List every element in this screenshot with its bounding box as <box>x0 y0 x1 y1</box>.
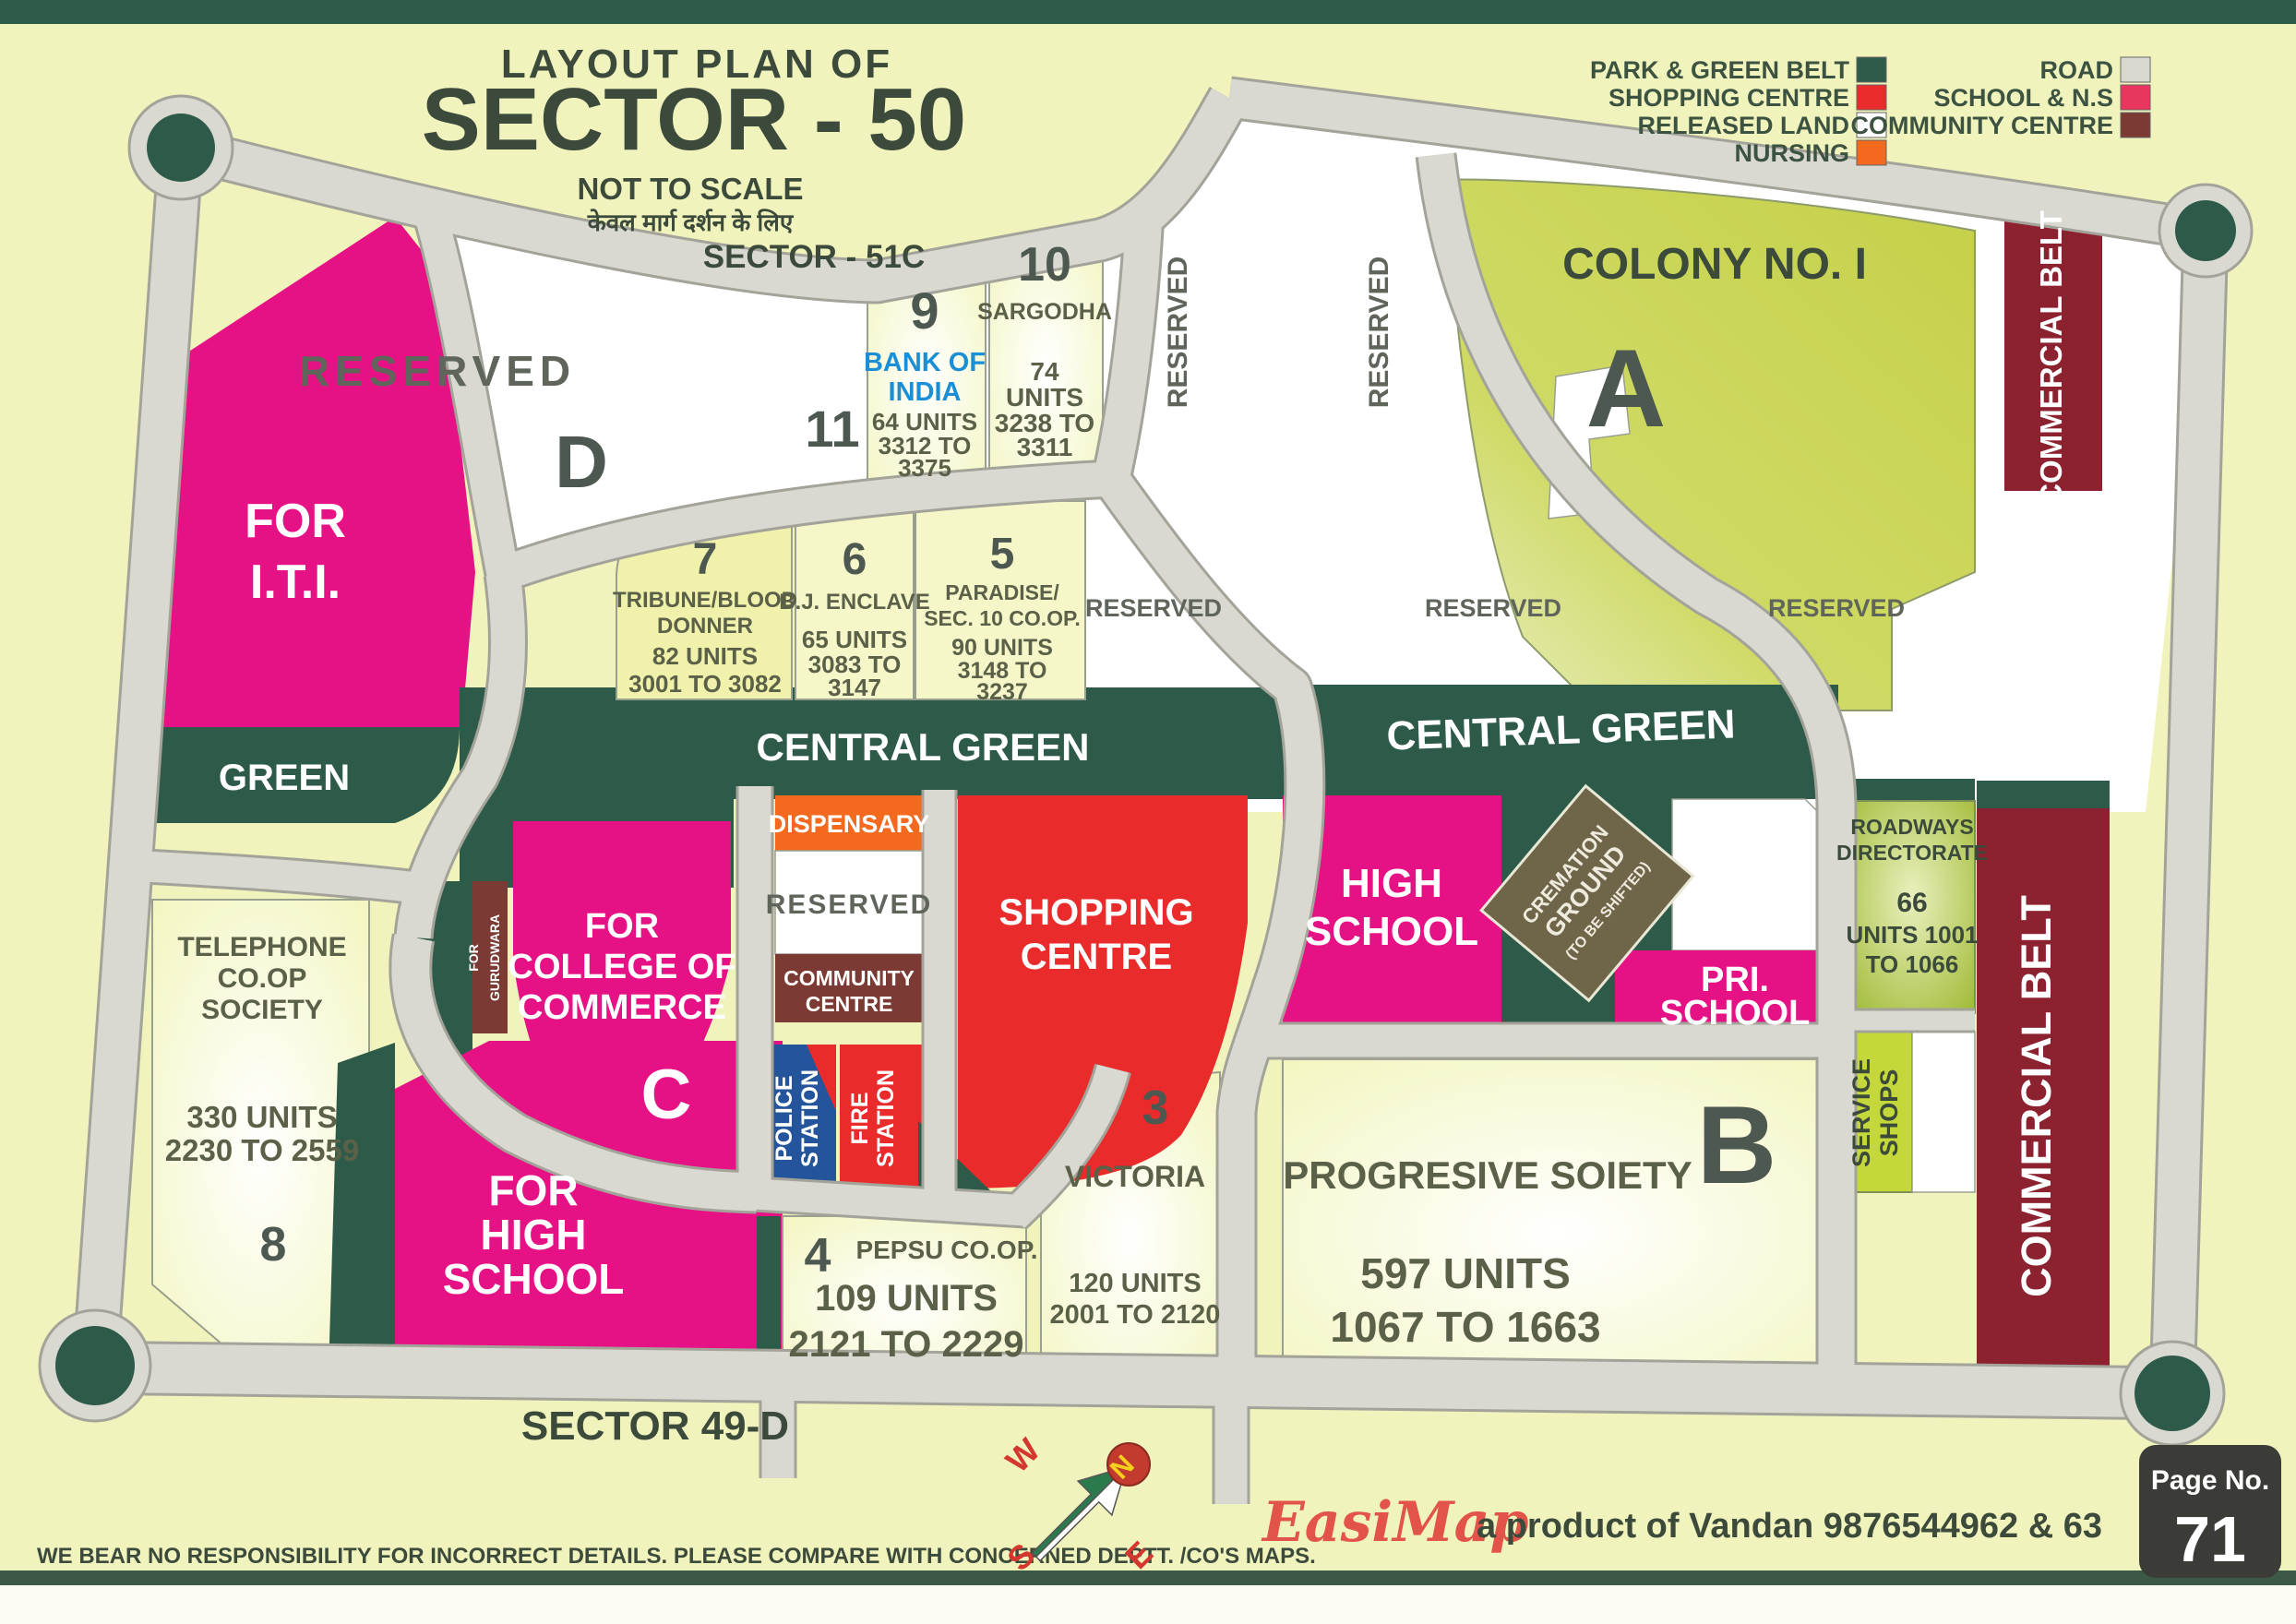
roundabout-top-left <box>147 113 215 182</box>
legend-label-road: ROAD <box>2040 56 2114 84</box>
fhs-label-2: HIGH <box>481 1211 587 1259</box>
green-strip-belt <box>1977 781 2110 808</box>
roadways-units-2: UNITS 1001 <box>1846 921 1978 949</box>
legend-label-shopping: SHOPPING CENTRE <box>1608 84 1849 112</box>
sector-51c-label: SECTOR - 51C <box>703 239 926 275</box>
plot3-number: 3 <box>1142 1081 1169 1135</box>
telephone-range: 2230 TO 2559 <box>165 1133 359 1167</box>
gurudwara-label-1: FOR <box>466 944 481 972</box>
plot9-range-2: 3375 <box>898 454 951 482</box>
high-school-label-2: SCHOOL <box>1305 909 1478 954</box>
b-range-label: 1067 TO 1663 <box>1330 1303 1600 1351</box>
reserved-mid-1: RESERVED <box>1085 594 1222 622</box>
released-block-east <box>1672 799 1838 950</box>
fhs-label-3: SCHOOL <box>443 1255 625 1303</box>
legend-swatch-road <box>2121 57 2150 82</box>
plot6-number: 6 <box>843 535 867 584</box>
legend-swatch-nursing <box>1857 140 1886 165</box>
roundabout-bottom-left <box>55 1326 135 1405</box>
progresive-soiety-label: PROGRESIVE SOIETY <box>1283 1153 1692 1197</box>
shopping-centre-label-2: CENTRE <box>1021 937 1172 977</box>
commercial-belt-north-label: COMMERCIAL BELT <box>2034 210 2068 506</box>
green-label: GREEN <box>219 758 350 798</box>
legend-label-nursing: NURSING <box>1734 139 1849 167</box>
plot9-name-2: INDIA <box>889 377 962 407</box>
top-border-strip <box>0 0 2296 24</box>
plot4-name: PEPSU CO.OP. <box>855 1236 1037 1264</box>
zone-b-letter: B <box>1697 1083 1777 1207</box>
roundabout-bottom-right <box>2135 1355 2210 1431</box>
plot4-units: 109 UNITS <box>815 1278 998 1319</box>
service-shops-label-2: SHOPS <box>1875 1069 1903 1157</box>
plot5-name-2: SEC. 10 CO.OP. <box>924 606 1081 630</box>
police-station-label-1: POLICE <box>771 1075 797 1161</box>
plot3-name: VICTORIA <box>1065 1160 1205 1193</box>
legend-swatch-park <box>1857 57 1886 82</box>
plot5-name-1: PARADISE/ <box>945 580 1059 604</box>
plot6-units: 65 UNITS <box>802 626 907 653</box>
legend-swatch-school <box>2121 85 2150 110</box>
telephone-units: 330 UNITS <box>186 1100 337 1134</box>
iti-label-2: I.T.I. <box>250 555 341 609</box>
plot5-range-2: 3237 <box>976 679 1028 705</box>
college-label-2: COLLEGE OF <box>508 948 736 986</box>
roadways-label-1: ROADWAYS <box>1850 815 1973 839</box>
fire-station-label-2: STATION <box>873 1069 899 1167</box>
sector-49d-label: SECTOR 49-D <box>521 1403 789 1449</box>
roadways-units-3: TO 1066 <box>1866 950 1959 978</box>
commercial-belt-south-label: COMMERCIAL BELT <box>2013 895 2060 1297</box>
green-strip-roadways <box>1849 779 1975 801</box>
roadways-units-1: 66 <box>1896 888 1927 918</box>
central-green-1-label: CENTRAL GREEN <box>757 725 1090 769</box>
bottom-border-strip <box>0 1570 2296 1585</box>
legend-label-park: PARK & GREEN BELT <box>1590 56 1850 84</box>
plot6-name: B.J. ENCLAVE <box>779 590 930 615</box>
plot4-range: 2121 TO 2229 <box>788 1324 1023 1365</box>
plot7-name-2: DONNER <box>657 614 753 639</box>
community-centre-label-2: CENTRE <box>806 992 893 1016</box>
plot9-number: 9 <box>910 281 939 340</box>
plot5-number: 5 <box>990 530 1015 579</box>
colony-letter-a: A <box>1586 327 1667 450</box>
page-number-label: Page No. <box>2151 1465 2269 1496</box>
zone-d-letter: D <box>555 421 608 503</box>
college-label-3: COMMERCE <box>518 988 726 1027</box>
service-shops-label-1: SERVICE <box>1848 1058 1875 1167</box>
plot6-range-2: 3147 <box>828 674 881 701</box>
dispensary-label: DISPENSARY <box>769 810 930 838</box>
police-station-label-2: STATION <box>797 1069 823 1167</box>
b-units-label: 597 UNITS <box>1360 1249 1571 1297</box>
scale-note: NOT TO SCALE <box>577 172 803 206</box>
high-school-label-1: HIGH <box>1341 861 1442 906</box>
zone-c-letter: C <box>641 1056 692 1134</box>
legend-label-school: SCHOOL & N.S <box>1933 84 2113 112</box>
reserved-vertical-2: RESERVED <box>1364 257 1394 409</box>
legend-swatch-shopping <box>1857 85 1886 110</box>
reserved-vertical-1: RESERVED <box>1163 257 1193 409</box>
plot10-number: 10 <box>1018 238 1071 292</box>
reserved-small-label: RESERVED <box>766 890 933 920</box>
college-label-1: FOR <box>585 907 659 946</box>
sector-50-layout-map: LAYOUT PLAN OF SECTOR - 50 NOT TO SCALE … <box>0 0 2296 1624</box>
pri-school-label-2: SCHOOL <box>1660 994 1811 1033</box>
plot9-name-1: BANK OF <box>864 348 986 377</box>
telephone-label-1: TELEPHONE <box>177 932 346 962</box>
plot10-name: SARGODHA <box>977 299 1112 325</box>
roundabout-top-right <box>2175 200 2236 261</box>
brand-tagline: a product of Vandan 9876544962 & 63 <box>1477 1507 2102 1546</box>
telephone-label-3: SOCIETY <box>201 995 323 1025</box>
plot7-range: 3001 TO 3082 <box>628 670 782 698</box>
plot3-range: 2001 TO 2120 <box>1050 1300 1221 1330</box>
reserved-mid-2: RESERVED <box>1425 594 1561 622</box>
map-title-line2: SECTOR - 50 <box>422 70 966 169</box>
plot10-units-1: 74 <box>1030 357 1059 386</box>
plot7-units: 82 UNITS <box>652 642 758 670</box>
shopping-centre-label-1: SHOPPING <box>999 892 1193 933</box>
page-number-box: Page No. 71 <box>2139 1445 2281 1578</box>
plot10-units-2: UNITS <box>1006 383 1083 412</box>
plot-8-number: 8 <box>260 1218 287 1272</box>
fhs-label-1: FOR <box>488 1166 578 1214</box>
page-number-value: 71 <box>2174 1503 2246 1575</box>
scale-note-hindi: केवल मार्ग दर्शन के लिए <box>587 209 795 236</box>
telephone-label-2: CO.OP <box>218 963 307 994</box>
colony-name: COLONY NO. I <box>1562 240 1867 289</box>
legend-swatch-community <box>2121 113 2150 137</box>
community-centre-label-1: COMMUNITY <box>783 966 915 990</box>
map-canvas: LAYOUT PLAN OF SECTOR - 50 NOT TO SCALE … <box>0 0 2296 1624</box>
plot7-number: 7 <box>693 535 718 584</box>
fire-station-label-1: FIRE <box>847 1093 873 1145</box>
green-band-fhs-west <box>329 1043 395 1373</box>
roadways-label-2: DIRECTORATE <box>1836 841 1988 865</box>
service-shops-white-block <box>1912 1032 1975 1192</box>
plot5-units: 90 UNITS <box>951 635 1053 661</box>
legend-label-community: COMMUNITY CENTRE <box>1850 112 2113 139</box>
reserved-mid-3: RESERVED <box>1768 594 1905 622</box>
plot3-units: 120 UNITS <box>1069 1269 1201 1298</box>
plot-11-number: 11 <box>805 400 859 458</box>
page-bottom-margin <box>0 1585 2296 1624</box>
plot7-name-1: TRIBUNE/BLOOD <box>613 588 797 613</box>
legend-label-released: RELEASED LAND <box>1637 112 1849 139</box>
gurudwara-label-2: GURUDWARA <box>487 914 502 1001</box>
plot10-range-2: 3311 <box>1017 433 1073 461</box>
iti-label-1: FOR <box>245 495 346 548</box>
plot4-number: 4 <box>805 1229 831 1283</box>
reserved-d-label: RESERVED <box>299 347 576 395</box>
